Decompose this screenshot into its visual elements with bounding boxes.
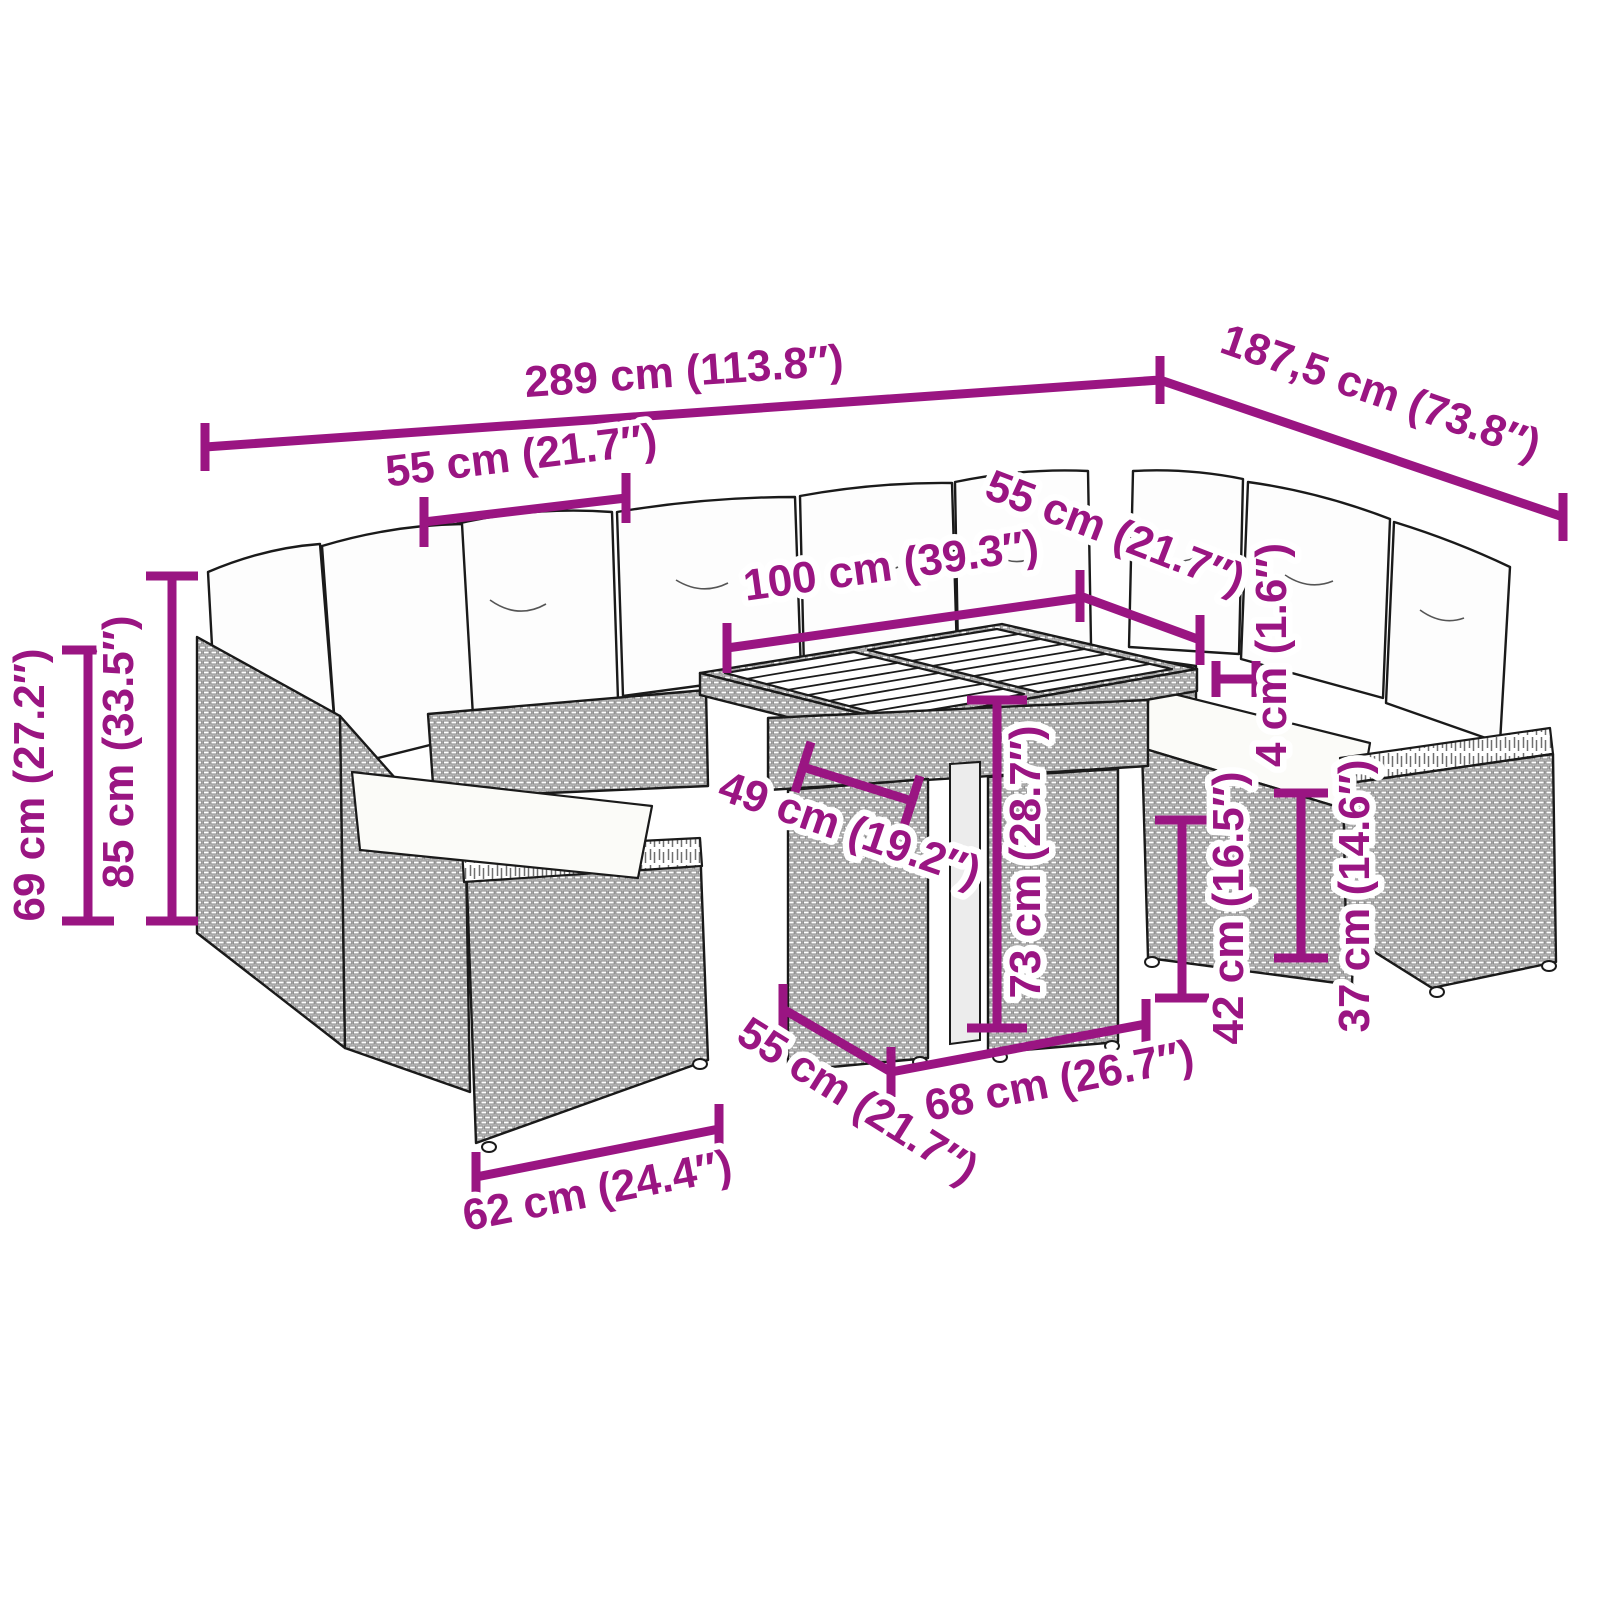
dimension-label: 187,5 cm (73.8″): [1215, 315, 1547, 470]
sofa-left-wing: [197, 637, 708, 1143]
table-center-post: [950, 762, 980, 1044]
dimension-label: 4 cm (1.6″): [1247, 543, 1296, 767]
dimension-label: 37 cm (14.6″): [1330, 759, 1379, 1032]
dimension-label: 289 cm (113.8″): [523, 336, 845, 407]
dimension-label: 85 cm (33.5″): [94, 615, 143, 888]
back-pillow: [1386, 522, 1510, 743]
rattan-armrest-body: [466, 842, 708, 1143]
dimension-diagram-svg: 289 cm (113.8″) 187,5 cm (73.8″) 55 cm (…: [0, 0, 1600, 1600]
product-dimension-image: 289 cm (113.8″) 187,5 cm (73.8″) 55 cm (…: [0, 0, 1600, 1600]
dimension-label: 42 cm (16.5″): [1204, 771, 1253, 1044]
dimension-label: 69 cm (27.2″): [5, 648, 54, 921]
dimension-overall-width: 289 cm (113.8″): [205, 336, 1160, 471]
dimension-label: 73 cm (28.7″): [1001, 725, 1050, 998]
dimension-total-height: 85 cm (33.5″): [94, 576, 198, 921]
dimension-line: [146, 576, 198, 921]
